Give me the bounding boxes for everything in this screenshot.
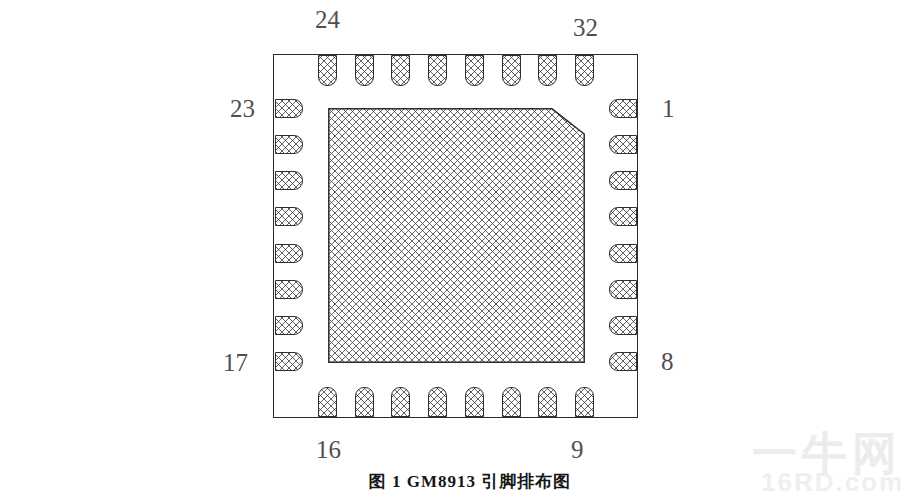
- pin-bottom-7: [538, 387, 557, 417]
- pin-top-4: [428, 55, 447, 86]
- pin-number-label-32: 32: [573, 15, 598, 40]
- pin-top-3: [391, 55, 410, 86]
- pin-bottom-6: [502, 387, 521, 417]
- pin-top-7: [538, 55, 557, 86]
- pin-right-8: [609, 352, 637, 371]
- pin-number-label-9: 9: [571, 437, 584, 462]
- pin-bottom-4: [428, 387, 447, 417]
- pin-right-3: [609, 171, 637, 190]
- pin-left-4: [275, 207, 303, 226]
- pin-left-5: [275, 244, 303, 263]
- pin-number-label-16: 16: [316, 437, 341, 462]
- watermark-site-domain: 16RD.com: [761, 469, 904, 495]
- thermal-pad-shape: [329, 109, 584, 362]
- pin-left-7: [275, 316, 303, 335]
- pin-left-6: [275, 280, 303, 299]
- pin-top-8: [575, 55, 594, 86]
- pin-bottom-5: [465, 387, 484, 417]
- thermal-pad: [328, 108, 585, 363]
- pin-top-1: [318, 55, 337, 86]
- pin-number-label-24: 24: [315, 7, 340, 32]
- pin-right-7: [609, 316, 637, 335]
- pin-top-2: [355, 55, 374, 86]
- pin-number-label-8: 8: [661, 349, 674, 374]
- pin-number-label-17: 17: [223, 350, 248, 375]
- pin-top-6: [502, 55, 521, 86]
- pin-bottom-8: [575, 387, 594, 417]
- pin-number-label-1: 1: [662, 96, 675, 121]
- pin-left-2: [275, 135, 303, 154]
- figure-canvas: 24 32 23 1 17 8 16 9 图 1 GM8913 引脚排布图 一牛…: [0, 0, 909, 498]
- pin-right-2: [609, 135, 637, 154]
- pin-top-5: [465, 55, 484, 86]
- pin-bottom-1: [318, 387, 337, 417]
- pin-right-5: [609, 244, 637, 263]
- pin-bottom-2: [355, 387, 374, 417]
- pin-number-label-23: 23: [230, 96, 255, 121]
- figure-caption: 图 1 GM8913 引脚排布图: [280, 470, 660, 493]
- pin-right-1: [609, 99, 637, 118]
- pin-right-4: [609, 207, 637, 226]
- pin-left-3: [275, 171, 303, 190]
- pin-left-8: [275, 352, 303, 371]
- pin-bottom-3: [391, 387, 410, 417]
- pin-left-1: [275, 99, 303, 118]
- pin-right-6: [609, 280, 637, 299]
